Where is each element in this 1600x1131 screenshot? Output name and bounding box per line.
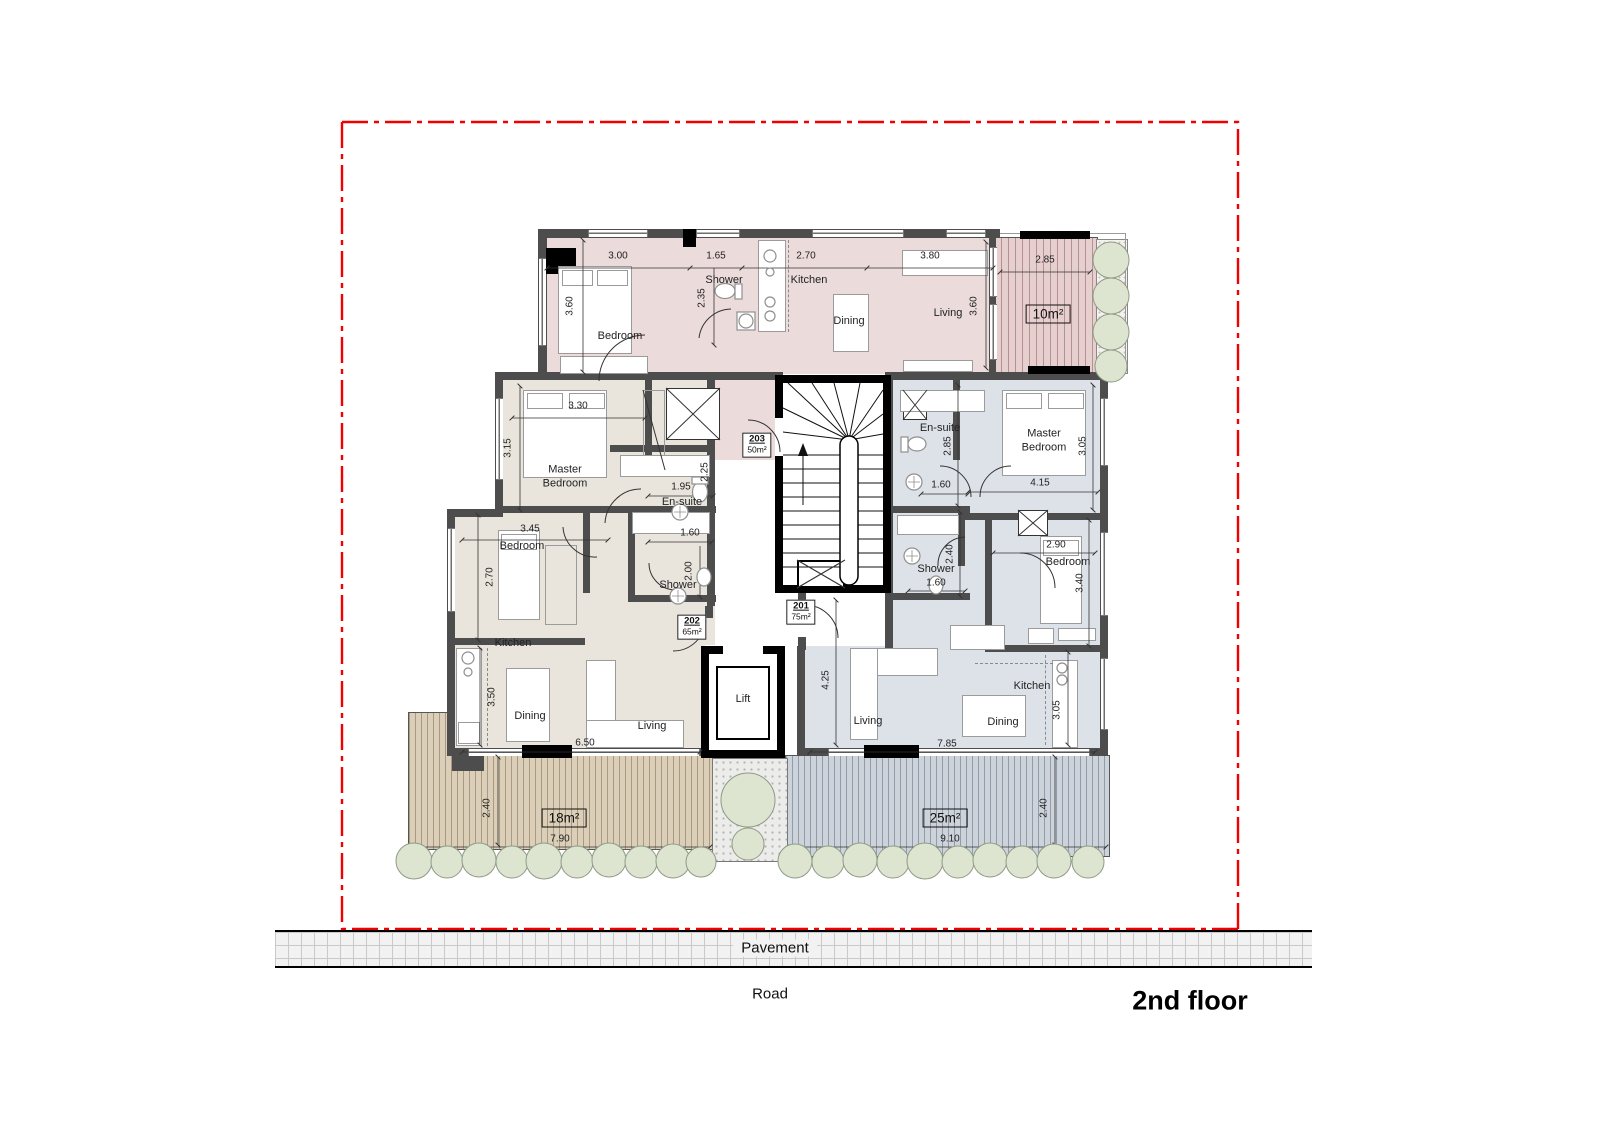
- pillow: [562, 270, 593, 286]
- unit-area-203: 50m²: [747, 446, 766, 456]
- balcony-top-outline: [993, 233, 1126, 373]
- window: [588, 230, 648, 237]
- road-label: Road: [752, 986, 788, 1003]
- window: [990, 304, 997, 360]
- room-label-living-202: Living: [638, 720, 667, 734]
- room-label-living-203: Living: [934, 307, 963, 321]
- pavement-label: Pavement: [733, 940, 817, 957]
- dim-201-living-w: 7.85: [937, 739, 956, 750]
- dim-201-master-h: 3.05: [1078, 436, 1089, 455]
- dim-201-master-w: 4.15: [1030, 478, 1049, 489]
- unit-tag-201: 201 75m²: [786, 600, 815, 625]
- lift-wall: [701, 750, 785, 758]
- room-label-shower-203: Shower: [705, 274, 742, 288]
- dim-201-shower-h: 2.40: [945, 544, 956, 563]
- balcony-area-label-top: 10m²: [1026, 305, 1071, 324]
- gravel-patch: [712, 758, 788, 862]
- hob: [458, 722, 480, 744]
- room-label-master-201: Master Bedroom: [1008, 427, 1080, 455]
- room-label-bedroom-201: Bedroom: [1046, 556, 1091, 570]
- dim-201-ensuite-h: 2.85: [943, 436, 954, 455]
- kitchen-counter: [950, 625, 1005, 650]
- plan-title: 2nd floor: [1132, 986, 1248, 1017]
- dim-203-kitchen-w: 2.70: [796, 251, 815, 262]
- lift-door: [722, 646, 764, 654]
- room-label-shower-201: Shower: [917, 563, 954, 577]
- wall: [628, 595, 716, 602]
- dim-201-living-h: 4.25: [821, 670, 832, 689]
- room-label-dining-202: Dining: [514, 710, 545, 724]
- window: [812, 230, 904, 237]
- wall: [885, 593, 970, 600]
- window: [448, 528, 455, 612]
- wall: [447, 509, 503, 517]
- counter-dashed-line: [1045, 655, 1046, 745]
- window: [1101, 658, 1108, 730]
- stairwell-core: [783, 383, 883, 585]
- wardrobe: [1028, 628, 1054, 644]
- dim-202-living-w: 6.50: [575, 738, 594, 749]
- dim-203-balcony-w: 2.85: [1035, 255, 1054, 266]
- dim-202-kitchen-h: 3.50: [487, 687, 498, 706]
- room-label-shower-202: Shower: [659, 579, 696, 593]
- window: [539, 258, 546, 346]
- wall: [452, 756, 484, 771]
- dim-203-shower-h: 2.35: [697, 288, 708, 307]
- pillow: [1006, 393, 1042, 409]
- wall: [1020, 231, 1090, 239]
- wall: [503, 506, 633, 513]
- window: [1101, 532, 1108, 616]
- room-label-kitchen-202: Kitchen: [495, 637, 532, 651]
- wall: [797, 646, 805, 756]
- bathtub: [900, 390, 985, 412]
- wall: [885, 593, 893, 648]
- tv-unit: [903, 360, 973, 372]
- room-label-living-201: Living: [854, 715, 883, 729]
- room-label-ensuite-202: En-suite: [662, 496, 702, 510]
- kitchen-counter: [758, 240, 786, 332]
- unit-tag-202: 202 65m²: [677, 615, 706, 640]
- room-label-bedroom-203: Bedroom: [598, 330, 643, 344]
- unit-tag-203: 203 50m²: [742, 433, 771, 458]
- dim-202-ensuite-h: 2.25: [700, 462, 711, 481]
- counter-dashed-line: [975, 663, 1053, 664]
- dim-202-bedroom-h: 2.70: [485, 567, 496, 586]
- stairwell-wall: [883, 375, 891, 593]
- pillow: [527, 393, 563, 409]
- dim-203-shower-w: 1.65: [706, 251, 725, 262]
- pillow: [597, 270, 628, 286]
- dim-202-master-w: 3.30: [568, 401, 587, 412]
- room-label-dining-203: Dining: [833, 315, 864, 329]
- dim-202-balcony-h: 2.40: [482, 798, 493, 817]
- bathtub: [620, 455, 710, 477]
- shower-tray: [897, 515, 959, 535]
- wall: [583, 513, 590, 593]
- stairwell-wall: [775, 375, 891, 383]
- lift-wall: [777, 646, 785, 758]
- dim-202-bedroom-w: 3.45: [520, 524, 539, 535]
- dining-table: [506, 668, 550, 742]
- dim-203-left-h: 3.60: [565, 296, 576, 315]
- sliding-door: [864, 745, 919, 758]
- room-label-ensuite-201: En-suite: [920, 422, 960, 436]
- window: [946, 230, 986, 237]
- dim-201-balcony-w: 9.10: [940, 834, 959, 845]
- pillow: [1048, 393, 1084, 409]
- wardrobe: [1058, 628, 1096, 641]
- dim-201-ensuite-w: 1.60: [931, 480, 950, 491]
- window: [696, 230, 740, 237]
- window: [990, 247, 997, 297]
- balcony-area-label-left: 18m²: [542, 809, 587, 828]
- room-label-kitchen-203: Kitchen: [791, 274, 828, 288]
- counter-dashed-line: [788, 240, 789, 332]
- wall: [1028, 366, 1090, 374]
- window: [468, 749, 700, 756]
- room-label-lift: Lift: [736, 693, 751, 707]
- room-label-bedroom-202: Bedroom: [500, 540, 545, 554]
- dim-202-master-h: 3.15: [503, 438, 514, 457]
- room-label-master-202: Master Bedroom: [529, 463, 601, 491]
- dim-201-kitchen-h: 3.05: [1052, 700, 1063, 719]
- dim-202-shower-h: 2.00: [684, 561, 695, 580]
- shaft: [666, 388, 720, 440]
- shaft: [1018, 510, 1048, 536]
- unit-area-202: 65m²: [682, 628, 701, 638]
- wall: [683, 229, 696, 247]
- dim-203-right-h: 3.60: [969, 296, 980, 315]
- dim-202-ensuite-w: 1.95: [671, 482, 690, 493]
- dim-203-living-w: 3.80: [920, 251, 939, 262]
- wardrobe: [545, 545, 577, 625]
- sliding-door: [522, 745, 572, 758]
- dim-202-shower-w: 1.60: [680, 528, 699, 539]
- stair-door-gap: [775, 418, 783, 456]
- window: [1101, 398, 1108, 466]
- corridor: [715, 460, 775, 646]
- room-label-dining-201: Dining: [987, 716, 1018, 730]
- sofa: [586, 720, 684, 748]
- lift-wall: [701, 646, 709, 758]
- wall: [798, 637, 806, 650]
- balcony-area-label-right: 25m²: [923, 809, 968, 828]
- room-label-kitchen-201: Kitchen: [1014, 680, 1051, 694]
- dim-201-bedroom-h: 3.40: [1075, 573, 1086, 592]
- sofa: [902, 250, 988, 276]
- dim-201-bedroom-w: 2.90: [1046, 540, 1065, 551]
- bench: [560, 356, 648, 374]
- dim-202-balcony-w: 7.90: [550, 834, 569, 845]
- duct-shaft: [797, 560, 845, 588]
- unit-area-201: 75m²: [791, 613, 810, 623]
- dim-201-balcony-h: 2.40: [1039, 798, 1050, 817]
- floor-plan-canvas: Bedroom Shower Kitchen Dining Living Mas…: [0, 0, 1600, 1131]
- dim-203-bedroom-w: 3.00: [608, 251, 627, 262]
- dim-201-shower-w: 1.60: [926, 578, 945, 589]
- stairwell-wall: [775, 375, 783, 593]
